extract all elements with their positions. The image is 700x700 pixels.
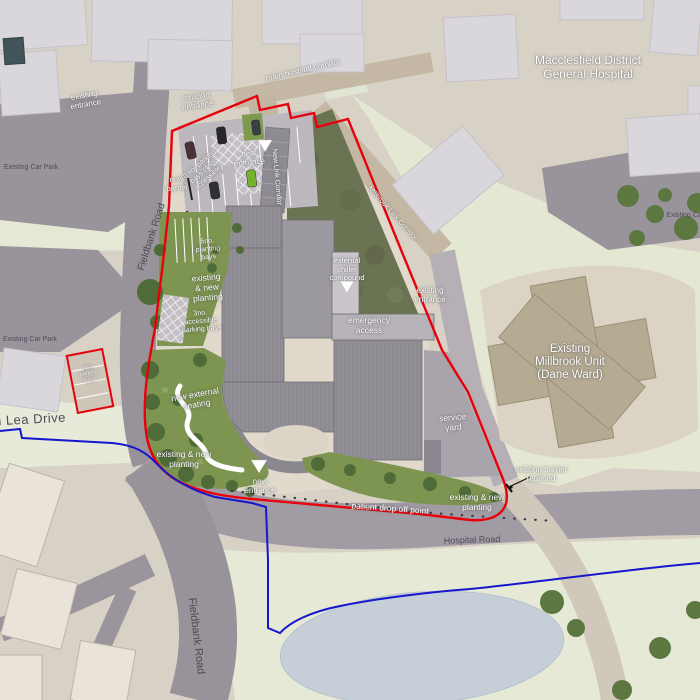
building-dark xyxy=(3,37,25,64)
site-plan-canvas xyxy=(0,0,700,700)
building xyxy=(70,641,136,700)
green-texture xyxy=(387,287,403,303)
building xyxy=(626,113,700,176)
site-plan: Macclesfield District General Hospital e… xyxy=(0,0,700,700)
car xyxy=(246,169,257,187)
building xyxy=(300,34,364,72)
building xyxy=(649,0,700,56)
building-block xyxy=(222,382,336,432)
building-block xyxy=(282,220,334,338)
building xyxy=(560,0,644,20)
building xyxy=(0,348,66,412)
service-yard-block xyxy=(424,440,441,474)
building xyxy=(0,655,42,700)
car xyxy=(251,120,261,136)
building xyxy=(148,39,233,90)
drop-off-island xyxy=(263,425,329,459)
building-block xyxy=(222,248,284,382)
car xyxy=(216,126,227,144)
building xyxy=(443,14,518,82)
building-block xyxy=(334,338,422,460)
green-texture xyxy=(339,189,361,211)
green-texture xyxy=(365,245,385,265)
emergency-access-strip xyxy=(332,314,434,340)
